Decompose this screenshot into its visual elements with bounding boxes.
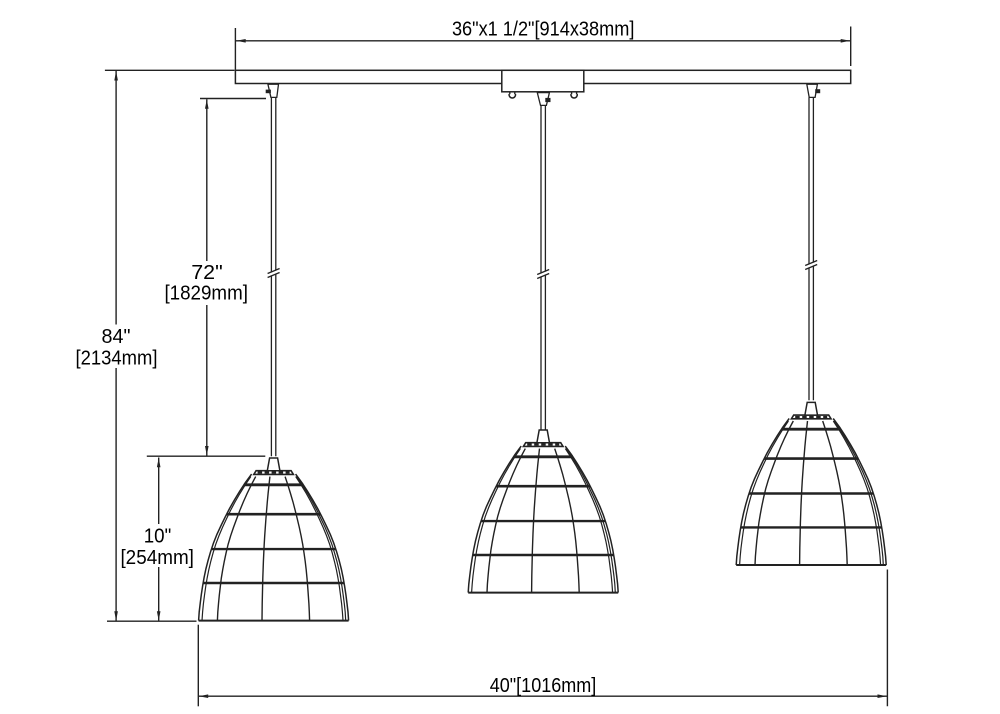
svg-text:72": 72" [191,262,223,284]
svg-text:[1829mm]: [1829mm] [164,283,248,305]
svg-text:84": 84" [102,326,131,348]
svg-text:[2134mm]: [2134mm] [76,347,158,369]
svg-text:40"[1016mm]: 40"[1016mm] [490,675,597,697]
svg-text:36"x1 1/2"[914x38mm]: 36"x1 1/2"[914x38mm] [452,19,635,41]
svg-text:10": 10" [144,526,172,548]
svg-text:[254mm]: [254mm] [120,547,194,569]
